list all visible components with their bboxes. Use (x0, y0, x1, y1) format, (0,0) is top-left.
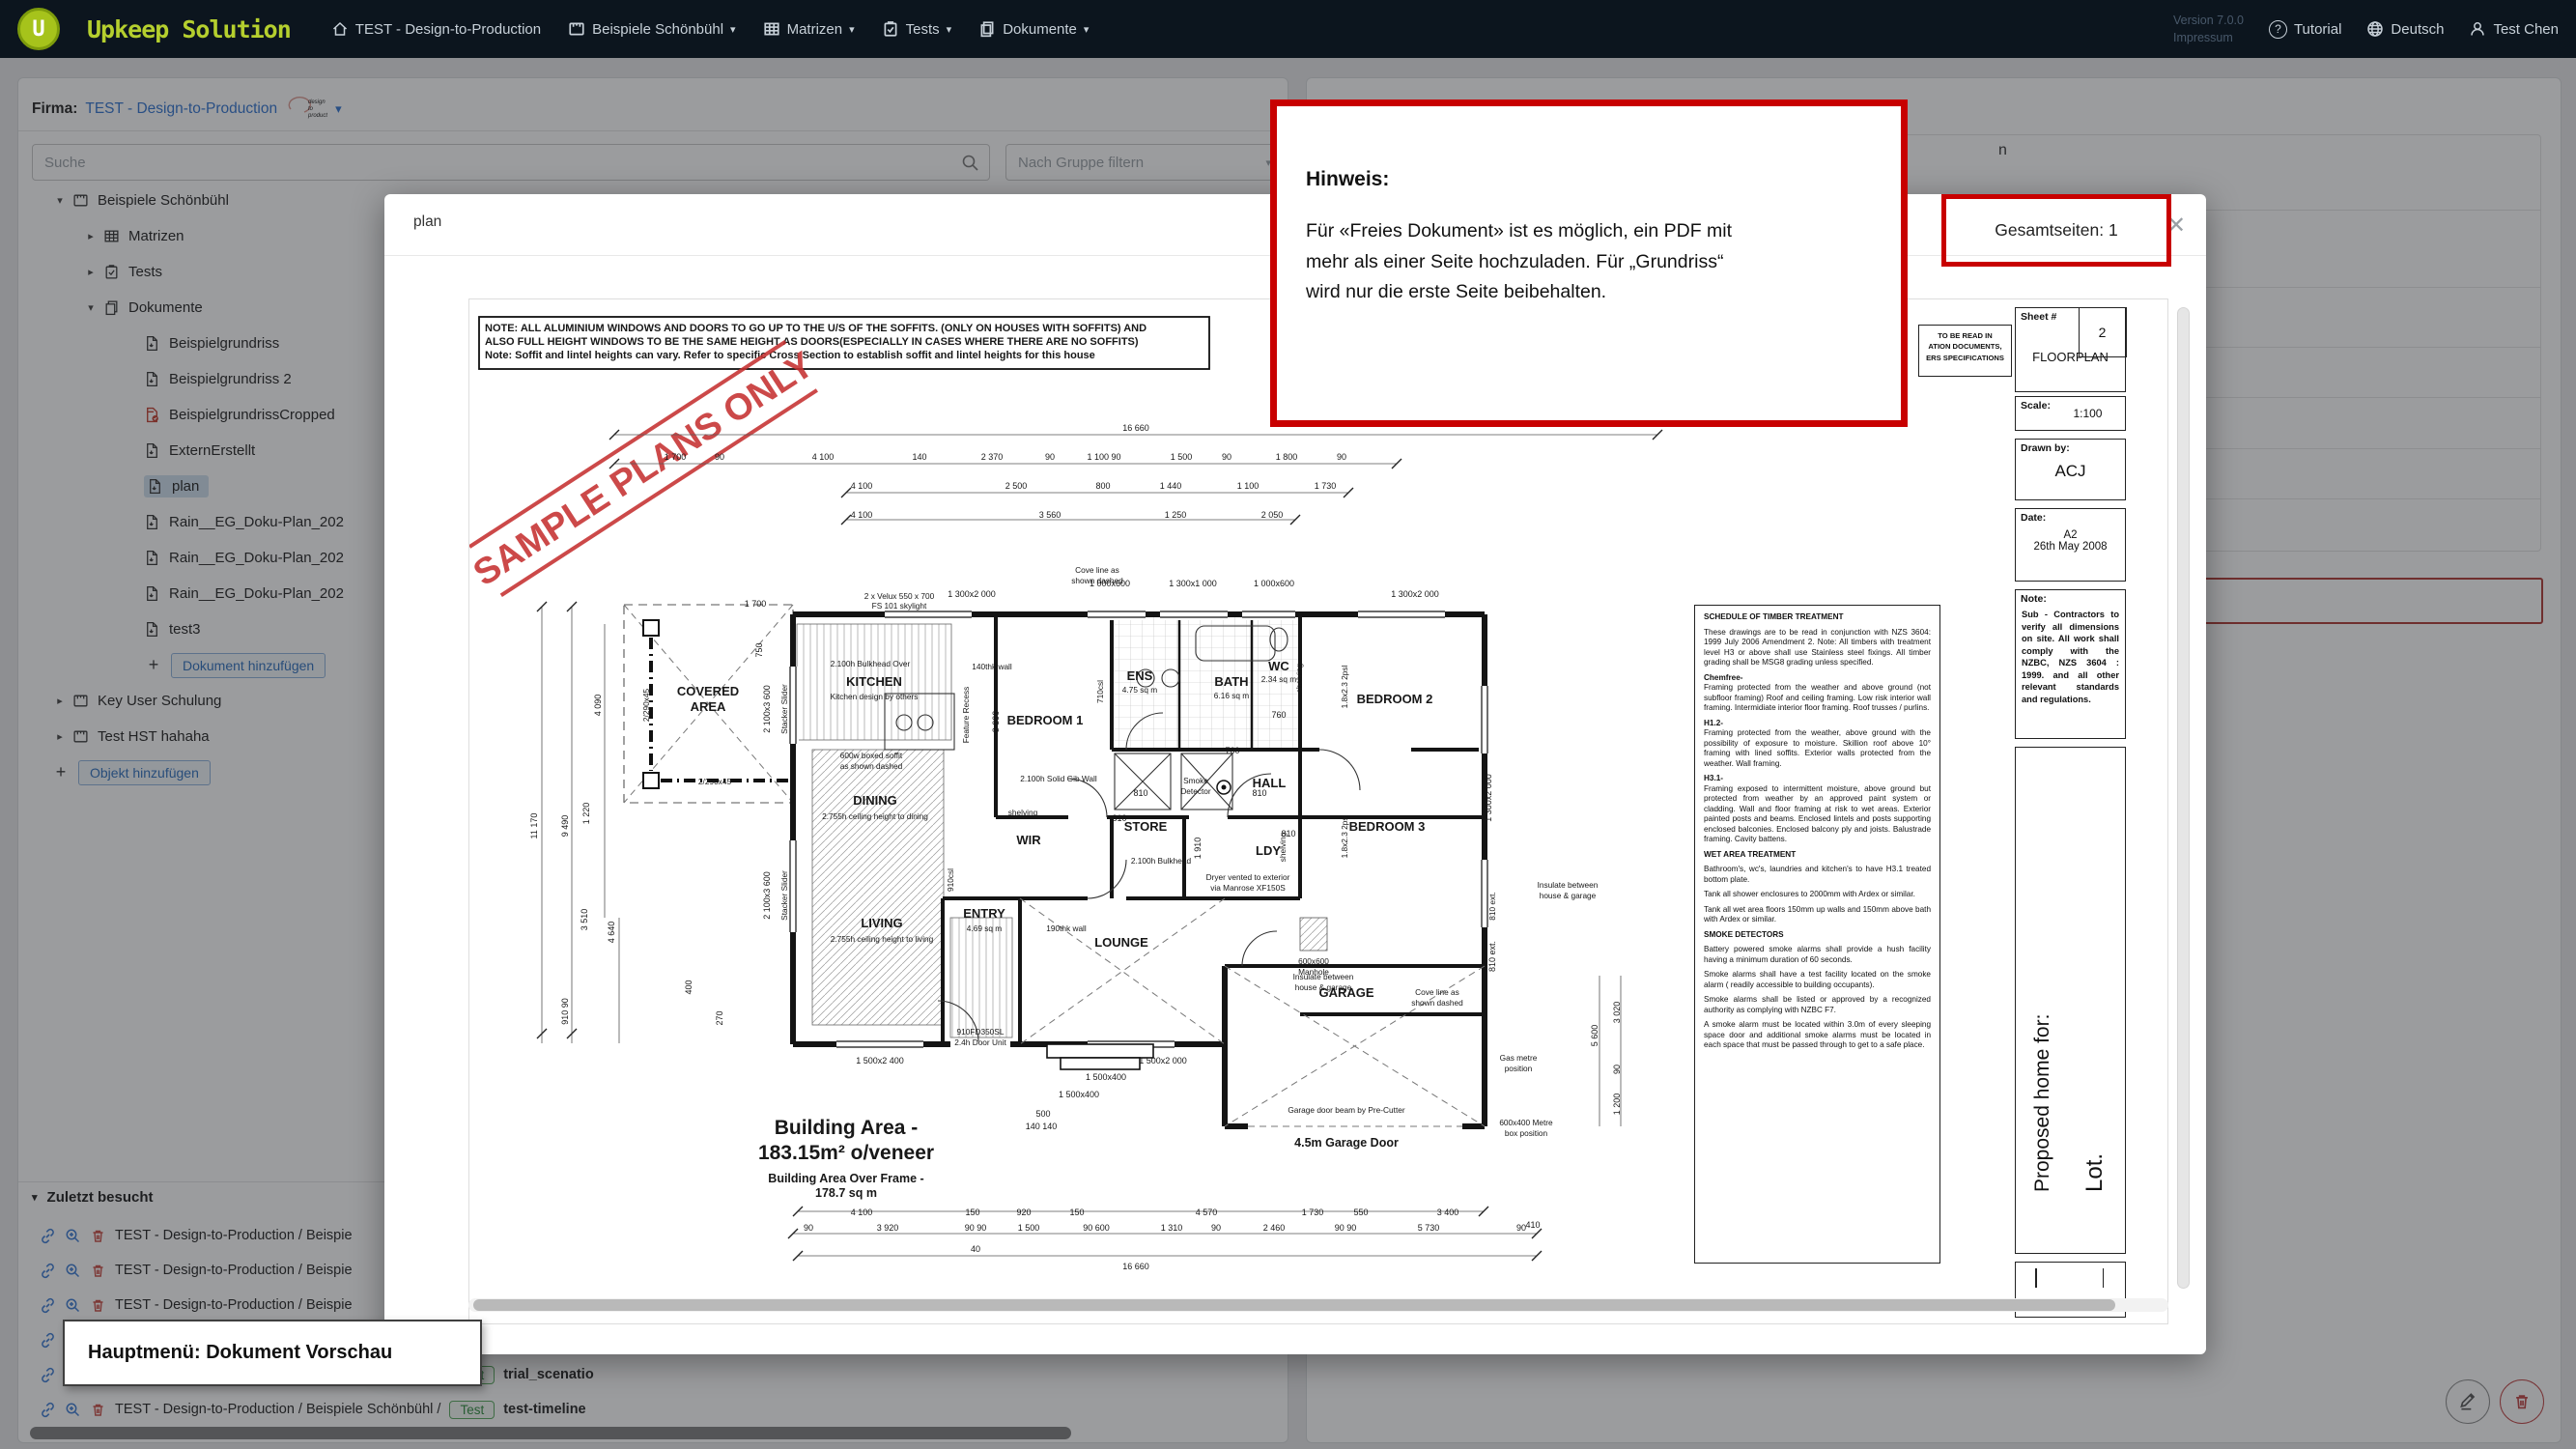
dimension-label: 1 100 (1237, 481, 1260, 491)
plan-annotation: 2.4h Door Unit (954, 1037, 1006, 1047)
dimension-label: 2 460 (1263, 1223, 1286, 1233)
window-size-label: 1 500x2 000 (1139, 1056, 1187, 1065)
room-label: DINING (853, 793, 897, 808)
hinweis-text-line: mehr als einer Seite hochzuladen. Für „G… (1306, 247, 1872, 278)
dimension-label: 4 100 (851, 1207, 873, 1217)
schedule-heading: H3.1- (1704, 774, 1931, 784)
plan-annotation: 2/290x45 (698, 777, 732, 786)
dimension-label: 910 90 (560, 998, 570, 1025)
dimension-label: 920 (1016, 1207, 1031, 1217)
dimension-label: 90 (1045, 452, 1055, 462)
window-size-label: 1 500x400 (1059, 1090, 1099, 1099)
plan-annotation: 910FD350SL (957, 1027, 1005, 1037)
chevron-down-icon: ▾ (947, 23, 952, 36)
dimension-label: 1 700 (665, 452, 687, 462)
dimension-label: 400 (684, 980, 694, 994)
plan-note-line: ALSO FULL HEIGHT WINDOWS TO BE THE SAME … (485, 336, 1139, 348)
user-icon (2469, 20, 2486, 38)
read-note-box: TO BE READ IN ATION DOCUMENTS, ERS SPECI… (1918, 325, 2012, 377)
version-text: Version 7.0.0 (2173, 12, 2244, 29)
brand-solution: Solution (182, 15, 290, 43)
titleblock-date: Date: A2 26th May 2008 (2015, 508, 2126, 582)
dimension-label: 140 140 (1026, 1122, 1058, 1131)
read-note-line: ATION DOCUMENTS, (1919, 341, 2011, 352)
chevron-down-icon: ▾ (1084, 23, 1090, 36)
plan-annotation: Detector (1180, 786, 1211, 796)
dimension-label: 1 220 (581, 803, 591, 825)
room-label: ENTRY (963, 906, 1005, 921)
nav-item-label: Matrizen (787, 21, 843, 38)
window-size-label: 1 500x400 (1086, 1072, 1126, 1082)
date-value: 26th May 2008 (2016, 541, 2125, 553)
window-size-label: 1 300x2 000 (948, 589, 996, 599)
dimension-label: 500 (1035, 1109, 1050, 1119)
lot-label: Lot. (2081, 1153, 2109, 1192)
nav-item-label: Tests (906, 21, 940, 38)
plan-annotation: via Manrose XF150S (1210, 883, 1286, 893)
dimension-label: 9 490 (560, 815, 570, 838)
vertical-scrollbar[interactable] (2177, 307, 2190, 1289)
dimension-label: 810 (1281, 829, 1295, 838)
plan-annotation: Stacker Slider (779, 684, 789, 734)
dimension-label: 2 050 (1261, 510, 1284, 520)
plan-annotation: 2 x Velux 550 x 700 (864, 591, 935, 601)
note-text: Sub - Contractors to verify all dimensio… (2016, 605, 2125, 709)
dimension-labels: 16 660 1 700 90 4 100 140 2 370 90 1 100… (529, 423, 1622, 1271)
dimension-label: 2 500 (1005, 481, 1028, 491)
plan-annotation: 4.75 sq m (1122, 685, 1158, 695)
total-pages-label: Gesamtseiten: 1 (1995, 220, 2117, 241)
building-area-frame-label: Building Area Over Frame - (768, 1172, 923, 1185)
window-size-label: 1 000x600 (1254, 579, 1294, 588)
date-label: Date: (2016, 509, 2125, 524)
version-info: Version 7.0.0 Impressum (2173, 12, 2244, 46)
plan-annotation: 2/290x45 (641, 689, 651, 723)
nav-item-dokumente[interactable]: Dokumente ▾ (978, 20, 1089, 38)
dimension-label: 140 (912, 452, 926, 462)
window-size-label: 1 500x2 400 (856, 1056, 904, 1065)
total-pages-highlight: Gesamtseiten: 1 (1941, 194, 2171, 267)
tutorial-button[interactable]: ? Tutorial (2269, 20, 2341, 39)
dimension-label: 800 (1095, 481, 1110, 491)
dimension-label: 1 440 (1160, 481, 1182, 491)
schedule-paragraph: Bathroom's, wc's, laundries and kitchen'… (1704, 865, 1931, 885)
dimension-label: 750 (754, 642, 764, 657)
dimension-label: 11 170 (529, 813, 539, 839)
dimension-label: 90 (1211, 1223, 1221, 1233)
plan-annotation: 2.100h Bulkhead (1131, 856, 1192, 866)
schedule-heading: H1.2- (1704, 719, 1931, 729)
language-button[interactable]: Deutsch (2366, 20, 2444, 38)
horizontal-scrollbar-track (468, 1298, 2168, 1312)
nav-item-beispiele[interactable]: Beispiele Schönbühl ▾ (568, 20, 735, 38)
stamp-text: SAMPLE PLANS ONLY (469, 344, 821, 594)
dimension-label: 150 (965, 1207, 979, 1217)
titleblock-drawnby: Drawn by: ACJ (2015, 439, 2126, 500)
dimension-label: 1 700 (745, 599, 767, 609)
building-area-value: 183.15m² o/veneer (758, 1142, 934, 1164)
plan-annotation: Stacker Slider (779, 870, 789, 921)
dimension-lines (537, 430, 1662, 1261)
user-name: Test Chen (2493, 21, 2559, 38)
plan-annotation: Dryer vented to exterior (1206, 872, 1290, 882)
top-nav: U Upkeep Solution TEST - Design-to-Produ… (0, 0, 2576, 58)
room-label: ENS (1127, 668, 1153, 683)
dimension-label: 150 (1069, 1207, 1084, 1217)
window-size-label: 1 000x600 (1090, 579, 1130, 588)
dimension-label: 4 100 (851, 510, 873, 520)
dimension-label: 90 90 (965, 1223, 987, 1233)
tutorial-label: Tutorial (2294, 21, 2341, 38)
plan-annotation: Gas metre (1500, 1053, 1538, 1063)
plan-annotation: shelving (1294, 663, 1304, 693)
titleblock-scale: Scale: 1:100 (2015, 396, 2126, 431)
sheet-number: 2 (2079, 307, 2127, 357)
dimension-label: 16 660 (1122, 1262, 1149, 1271)
proposed-home-label: Proposed home for: (2031, 1014, 2054, 1192)
room-label: LOUNGE (1094, 935, 1148, 950)
home-icon (331, 20, 349, 38)
dimension-label: 4 090 (593, 695, 603, 717)
schedule-paragraph: Smoke alarms shall have a test facility … (1704, 970, 1931, 990)
hinweis-text-line: Für «Freies Dokument» ist es möglich, ei… (1306, 216, 1872, 247)
schedule-paragraph: Battery powered smoke alarms shall provi… (1704, 945, 1931, 965)
dimension-label: 90 600 (1083, 1223, 1110, 1233)
room-label: WC (1268, 659, 1289, 673)
plan-annotation: 4.5m Garage Door (1294, 1136, 1399, 1150)
question-icon: ? (2269, 20, 2287, 39)
dimension-label: 3 390 (991, 711, 1001, 733)
dimension-label: 1 100 90 (1087, 452, 1120, 462)
horizontal-scrollbar[interactable] (473, 1299, 2115, 1311)
dimension-label: 4 100 (812, 452, 835, 462)
plan-annotation: 910csl (946, 868, 955, 892)
plan-annotation: 140thk wall (972, 662, 1012, 671)
nav-item-label: Beispiele Schönbühl (592, 21, 723, 38)
dimension-label: 2 370 (981, 452, 1004, 462)
dimension-label: 3 510 (580, 909, 589, 931)
plan-annotation: position (1505, 1064, 1533, 1073)
schedule-paragraph: Smoke alarms shall be listed or approved… (1704, 995, 1931, 1015)
room-label: BEDROOM 3 (1349, 819, 1426, 834)
schedule-paragraph: Framing exposed to intermittent moisture… (1704, 784, 1931, 845)
room-label: BEDROOM 2 (1357, 692, 1433, 706)
dimension-label: 90 (804, 1223, 813, 1233)
app-root: U Upkeep Solution TEST - Design-to-Produ… (0, 0, 2576, 1449)
schedule-paragraph: Framing protected from the weather, abov… (1704, 728, 1931, 769)
window-size-label: 1 300x1 000 (1169, 579, 1217, 588)
dimension-label: 90 (715, 452, 724, 462)
dimension-label: 4 100 (851, 481, 873, 491)
dimension-label: 3 560 (1039, 510, 1062, 520)
plan-note-line: NOTE: ALL ALUMINIUM WINDOWS AND DOORS TO… (485, 323, 1146, 334)
schedule-paragraph: Framing protected from the weather and a… (1704, 683, 1931, 714)
drawnby-value: ACJ (2016, 462, 2125, 481)
dimension-label: 760 (1225, 746, 1239, 755)
drawnby-label: Drawn by: (2016, 440, 2125, 454)
dimension-label: 90 90 (1335, 1223, 1357, 1233)
plan-annotation: shelving (1008, 808, 1038, 817)
plan-annotation: FS 101 skylight (872, 601, 927, 611)
dimension-label: 16 660 (1122, 423, 1149, 433)
dimension-label: 1 500 (1171, 452, 1193, 462)
schedule-title: SCHEDULE OF TIMBER TREATMENT (1704, 612, 1931, 623)
plan-annotation: 2.34 sq m (1261, 674, 1297, 684)
plan-annotation: 2.755h ceiling height to dining (822, 811, 928, 821)
sample-plans-stamp: SAMPLE PLANS ONLY (469, 336, 825, 601)
plan-annotation: house & garage (1295, 982, 1352, 992)
dimension-label: 90 (1516, 1223, 1526, 1233)
schedule-paragraph: These drawings are to be read in conjunc… (1704, 628, 1931, 668)
impressum-link[interactable]: Impressum (2173, 29, 2244, 46)
plan-annotation: Kitchen design by others (831, 692, 919, 701)
object-icon (568, 20, 585, 38)
screen-caption-label: Hauptmenü: Dokument Vorschau (63, 1320, 482, 1386)
brand-name: Upkeep Solution (87, 15, 291, 43)
plan-annotation: box position (1505, 1128, 1548, 1138)
plan-annotation: 600w boxed soffit (840, 751, 903, 760)
plan-annotation: 600x400 Metre (1499, 1118, 1553, 1127)
read-note-line: ERS SPECIFICATIONS (1919, 353, 2011, 363)
room-label: BATH (1214, 674, 1248, 689)
nav-item-home[interactable]: TEST - Design-to-Production (331, 20, 541, 38)
plan-annotation: 600x600 (1298, 956, 1329, 966)
plan-annotation: 6.16 sq m (1214, 691, 1250, 700)
caption-text: Hauptmenü: Dokument Vorschau (88, 1342, 392, 1364)
dimension-label: 4 570 (1196, 1207, 1218, 1217)
plan-annotation: 2.755h ceiling height to living (831, 934, 934, 944)
plan-annotation: Garage door beam by Pre-Cutter (1288, 1105, 1405, 1115)
hinweis-note-box: Hinweis: Für «Freies Dokument» ist es mö… (1270, 99, 1908, 427)
plan-annotation: 810 ext. (1487, 892, 1497, 921)
dimension-label: 270 (715, 1010, 724, 1025)
read-note-line: TO BE READ IN (1919, 330, 2011, 341)
dimension-label: 1 500 (1018, 1223, 1040, 1233)
dimension-label: 1 250 (1165, 510, 1187, 520)
dimension-label: 810 (1112, 813, 1126, 823)
app-logo-icon[interactable]: U (17, 8, 60, 50)
schedule-heading: SMOKE DETECTORS (1704, 930, 1931, 941)
titleblock-sheet: Sheet # 2 FLOORPLAN (2015, 307, 2126, 392)
plan-annotation: house & garage (1540, 891, 1597, 900)
schedule-paragraph: Tank all shower enclosures to 2000mm wit… (1704, 890, 1931, 900)
nav-item-tests[interactable]: Tests ▾ (882, 20, 952, 38)
plan-annotation: 710csl (1095, 680, 1105, 703)
dimension-label: 2 100x3 600 (762, 685, 772, 733)
plan-annotation: Insulate between (1293, 972, 1354, 981)
date-value: A2 (2016, 529, 2125, 541)
dimension-label: 2 100x3 600 (762, 871, 772, 920)
schedule-heading: Chemfree- (1704, 673, 1931, 684)
plan-annotation: Insulate between (1538, 880, 1599, 890)
room-label: STORE (1124, 819, 1168, 834)
schedule-paragraph: Tank all wet area floors 150mm up walls … (1704, 905, 1931, 925)
dimension-label: 1 910 (1193, 838, 1203, 860)
plan-annotation: 190thk wall (1046, 923, 1087, 933)
dimension-label: 1 730 (1302, 1207, 1324, 1217)
dimension-label: 3 020 (1612, 1002, 1622, 1024)
room-label: AREA (691, 699, 726, 714)
window-size-label: 1 300x2 000 (1484, 774, 1493, 822)
room-label: WIR (1016, 833, 1041, 847)
nav-right-cluster: Version 7.0.0 Impressum ? Tutorial Deuts… (2173, 12, 2559, 46)
window-size-label: 1 300x2 000 (1391, 589, 1439, 599)
titleblock-proposed: Proposed home for: Lot. (2015, 747, 2126, 1254)
logo-letter: U (32, 17, 44, 42)
plan-annotation: 2.100h Bulkhead Over (831, 659, 911, 668)
dimension-label: 760 (1271, 710, 1286, 720)
plan-annotation: 2.100h Solid Gib Wall (1020, 774, 1097, 783)
nav-item-matrizen[interactable]: Matrizen ▾ (763, 20, 855, 38)
note-label: Note: (2016, 590, 2125, 605)
dimension-label: 90 (1612, 1065, 1622, 1074)
dimension-label: 4 640 (607, 922, 616, 944)
dimension-label: 810 (1133, 788, 1147, 798)
dimension-label: 3 920 (877, 1223, 899, 1233)
building-area-label: Building Area - (775, 1117, 919, 1139)
hinweis-title: Hinweis: (1306, 168, 1872, 191)
brand-upkeep: Upkeep (87, 15, 168, 43)
plan-annotation: Cove line as (1415, 987, 1459, 997)
hinweis-text-line: wird nur die erste Seite beibehalten. (1306, 277, 1872, 308)
dimension-label: 40 (971, 1244, 980, 1254)
plan-annotation: as shown dashed (840, 761, 903, 771)
dimension-label: 810 ext. (1487, 941, 1497, 972)
plan-annotation: Cove line as (1075, 565, 1119, 575)
plan-annotation: Feature Recess (961, 687, 971, 744)
dimension-label: 5 600 (1590, 1025, 1599, 1047)
grid-icon (763, 20, 780, 38)
schedule-paragraph: A smoke alarm must be located within 3.0… (1704, 1020, 1931, 1051)
plan-annotation: 1.8x2.3 2psl (1340, 814, 1349, 858)
timber-schedule: SCHEDULE OF TIMBER TREATMENT These drawi… (1694, 605, 1940, 1264)
dimension-label: 410 (1525, 1220, 1540, 1230)
dimension-label: 1 310 (1161, 1223, 1183, 1233)
plan-annotation: 4.69 sq m (967, 923, 1003, 933)
schedule-heading: WET AREA TREATMENT (1704, 850, 1931, 861)
language-label: Deutsch (2391, 21, 2444, 38)
modal-title: plan (413, 213, 441, 231)
documents-icon (978, 20, 996, 38)
room-label: LIVING (861, 916, 902, 930)
dimension-label: 90 (1222, 452, 1231, 462)
titleblock-note: Note: Sub - Contractors to verify all di… (2015, 589, 2126, 739)
plan-annotation: shown dashed (1411, 998, 1463, 1008)
globe-icon (2366, 20, 2384, 38)
building-area-frame-value: 178.7 sq m (815, 1186, 877, 1200)
dimension-label: 90 (1337, 452, 1346, 462)
dimension-label: 3 400 (1437, 1207, 1459, 1217)
dimension-label: 810 (1252, 788, 1266, 798)
nav-item-label: TEST - Design-to-Production (355, 21, 541, 38)
dimension-label: 550 (1353, 1207, 1368, 1217)
chevron-down-icon: ▾ (730, 23, 736, 36)
plan-annotation: Smoke (1183, 776, 1208, 785)
scale-label: Scale: (2016, 397, 2051, 412)
room-label: KITCHEN (846, 674, 902, 689)
user-menu[interactable]: Test Chen (2469, 20, 2559, 38)
plan-annotation: 1.8x2.3 2psl (1340, 665, 1349, 708)
dimension-label: 1 730 (1315, 481, 1337, 491)
clipboard-check-icon (882, 20, 899, 38)
room-label: BEDROOM 1 (1007, 713, 1084, 727)
nav-item-label: Dokumente (1003, 21, 1077, 38)
dimension-label: 1 800 (1276, 452, 1298, 462)
pdf-page: NOTE: ALL ALUMINIUM WINDOWS AND DOORS TO… (468, 298, 2168, 1324)
dimension-label: 5 730 (1418, 1223, 1440, 1233)
room-label: COVERED (677, 684, 739, 698)
chevron-down-icon: ▾ (849, 23, 855, 36)
dimension-label: 1 200 (1612, 1094, 1622, 1116)
